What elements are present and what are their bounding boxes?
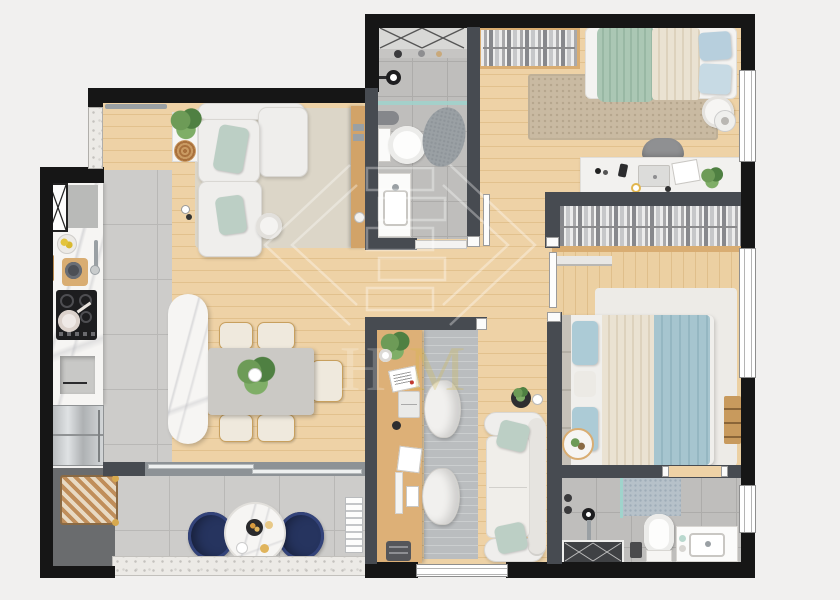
toilet-bowl <box>388 126 426 164</box>
cream-blanket <box>652 28 700 100</box>
plate-2 <box>260 544 269 553</box>
master-cream-duvet <box>602 315 654 465</box>
printer-slot <box>389 546 408 548</box>
table-vase <box>248 368 262 382</box>
toiletry-3 <box>436 51 442 57</box>
glass-partition <box>378 101 467 105</box>
magazine <box>388 365 420 392</box>
printer-slot2 <box>389 552 408 554</box>
bedroom1-desk <box>580 157 741 193</box>
wall-balcony <box>103 462 147 476</box>
wall-bottom-office-r <box>506 562 562 578</box>
home-office <box>377 330 562 566</box>
dining-chair-4 <box>257 414 295 442</box>
soap-2 <box>679 545 686 552</box>
office-rug <box>424 330 478 559</box>
storage-box <box>406 486 419 507</box>
plate-1 <box>236 542 248 554</box>
vanity2 <box>676 526 738 562</box>
sofa-seat-right <box>258 107 308 177</box>
fruit-bowl <box>57 234 77 254</box>
master-blue-duvet <box>654 315 710 465</box>
magazine-dot <box>410 380 415 385</box>
window-bedroom1 <box>739 70 756 162</box>
bathroom-1 <box>378 27 467 239</box>
stone-rug <box>417 103 471 170</box>
master-pillow-white <box>574 371 596 397</box>
window-living-left <box>88 107 103 169</box>
balcony-ledge <box>112 556 368 576</box>
toilet2-bowl <box>644 514 674 554</box>
sofa-pillow-2 <box>214 194 247 236</box>
decor-sphere <box>532 394 543 405</box>
mosaic-mat <box>623 478 681 516</box>
sofa-back-cushions <box>528 418 546 556</box>
vanity-sink <box>383 190 408 226</box>
navy-armchair-right <box>278 512 324 560</box>
printer <box>386 541 411 561</box>
frying-pan <box>58 310 80 332</box>
vanity2-faucet <box>705 541 711 547</box>
laptop <box>638 165 670 187</box>
wall-shelf <box>556 256 612 266</box>
lamp-bulb <box>721 117 729 125</box>
window-office <box>416 564 508 577</box>
bench-knob-1 <box>112 475 119 482</box>
desk-plant <box>699 166 725 190</box>
dining-chair-2 <box>257 322 295 350</box>
wall-bottom-bath2 <box>560 562 755 578</box>
open-shelf-niche <box>60 356 95 394</box>
paper-roll <box>379 349 392 362</box>
living-plant <box>168 106 204 142</box>
notebook <box>671 159 700 185</box>
counter-slab <box>68 185 98 228</box>
pot <box>65 262 82 279</box>
tray-plant <box>512 386 529 403</box>
sofa-seat-cushions <box>486 436 530 538</box>
bed1-pillow-2 <box>698 63 732 95</box>
wall-left <box>40 167 53 578</box>
wall-bottom-office-l <box>365 562 418 578</box>
window-master <box>739 248 756 378</box>
threshold-bath1 <box>415 240 467 249</box>
shower-control-1 <box>564 494 572 502</box>
dining-area <box>160 290 350 450</box>
fridge-divider <box>53 434 103 436</box>
laptop-logo <box>653 175 657 179</box>
console-handle-1 <box>353 124 364 131</box>
office-laptop <box>398 391 420 418</box>
cooktop <box>56 290 97 340</box>
master-pillow-1 <box>572 321 598 365</box>
refrigerator <box>52 405 104 466</box>
wicker-bench <box>60 475 118 525</box>
threshold-bath2 <box>669 466 721 477</box>
dining-chair-3 <box>219 414 253 442</box>
burner <box>60 294 74 308</box>
sliding-door-pane-2 <box>252 469 362 474</box>
ac-unit <box>345 497 363 553</box>
phone <box>618 163 629 177</box>
wall-bath1-left <box>365 88 378 250</box>
office-sofa <box>484 412 548 562</box>
basket <box>174 140 196 162</box>
wall-living-top <box>88 88 372 103</box>
cap-master-wall <box>547 312 561 322</box>
bedroom1-bed <box>585 27 737 99</box>
cooktop-knobs <box>59 332 95 336</box>
living-room <box>103 103 385 288</box>
wall-bedroom1-master <box>545 192 741 206</box>
wall-bath1-right <box>467 27 480 241</box>
curtain-rail <box>105 104 167 109</box>
shower-column <box>587 520 591 542</box>
toiletry-1 <box>394 50 402 58</box>
bed1-pillow-1 <box>698 31 732 61</box>
shower-head <box>386 70 401 85</box>
window-bath2 <box>739 485 756 533</box>
wall-bath1-bottom <box>365 238 417 250</box>
documents <box>397 446 423 474</box>
wardrobe-base <box>552 246 741 252</box>
master-bedroom <box>552 200 741 466</box>
balcony-table <box>226 504 284 562</box>
waste-bin <box>630 542 642 558</box>
balcony <box>52 462 368 576</box>
soap <box>679 535 686 542</box>
bedroom-1 <box>480 27 741 193</box>
shower-screen <box>378 27 467 50</box>
bathroom-2 <box>562 478 741 565</box>
master-wardrobe <box>552 206 741 248</box>
window-bench <box>724 396 741 444</box>
coffee-table <box>256 213 282 239</box>
shower-glass <box>620 478 623 518</box>
wall-bottom-left <box>40 566 115 578</box>
desk-item-dot <box>595 168 601 174</box>
dining-chair-5 <box>311 360 343 402</box>
sliding-door <box>145 462 365 476</box>
floor-plan: H M <box>0 0 840 600</box>
wall-sprayer <box>378 111 399 125</box>
decor-ball-2 <box>186 214 192 220</box>
console-table <box>351 106 366 248</box>
cap-master-stub <box>546 237 559 247</box>
wall-office-top <box>365 317 487 330</box>
desk-item-dot2 <box>603 170 608 175</box>
vanity-faucet <box>392 184 399 191</box>
cap-office-wall <box>476 318 487 330</box>
plate-3 <box>265 521 273 529</box>
office-mug <box>392 421 401 430</box>
bench-knob-2 <box>112 519 119 526</box>
keyboard <box>395 472 403 514</box>
sage-blanket <box>597 26 655 102</box>
master-door-leaf <box>549 252 557 308</box>
wall-top <box>365 14 755 28</box>
bedroom1-door-leaf <box>483 194 490 246</box>
niche-handle <box>63 382 87 384</box>
table-lamp <box>714 110 736 132</box>
dining-chair-1 <box>219 322 253 350</box>
cap-bath2-left <box>662 466 669 477</box>
wall-office-left <box>365 317 377 564</box>
serving-tray <box>246 519 263 536</box>
decor-plate <box>562 428 594 460</box>
sofa-seat-divider <box>489 487 527 488</box>
wall-master-left <box>547 312 562 564</box>
kitchen-island <box>168 294 208 444</box>
burner <box>80 311 92 323</box>
office-chair-1 <box>424 380 461 438</box>
kitchen-sink-drain <box>90 265 100 275</box>
toiletry-2 <box>418 50 425 57</box>
bedroom1-wardrobe <box>478 27 580 69</box>
cap-bath2-right <box>721 466 728 477</box>
console-decor <box>354 212 365 223</box>
office-chair-2 <box>422 468 460 525</box>
vanity <box>378 173 411 237</box>
cap-bath1-wall <box>467 236 480 247</box>
laptop-hinge <box>401 404 417 405</box>
sliding-door-pane-1 <box>148 464 254 469</box>
console-handle-2 <box>353 134 364 141</box>
office-desk <box>377 330 422 563</box>
kitchen-faucet <box>94 240 98 268</box>
shower-shelf <box>378 49 467 58</box>
decor-ball-1 <box>181 205 190 214</box>
shower-control-2 <box>564 506 572 514</box>
toilet2-tank <box>646 550 672 562</box>
fridge-handle <box>98 410 100 462</box>
shower-tray <box>562 540 624 564</box>
wall-bath1-outer <box>365 14 379 92</box>
